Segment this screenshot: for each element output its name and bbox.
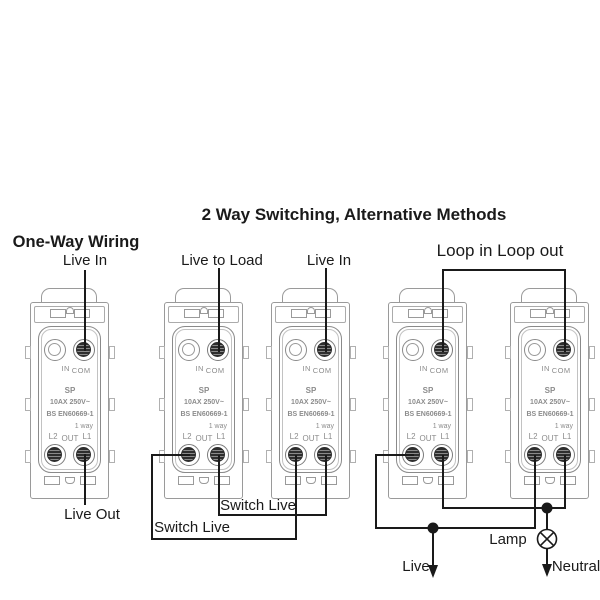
module-clip xyxy=(432,309,448,318)
live-arrow-icon xyxy=(428,565,438,578)
module-side-lug xyxy=(383,450,389,463)
sp-label: SP xyxy=(267,387,355,395)
switch-live-label-lower: Switch Live xyxy=(154,520,230,537)
wire-live-out-m1 xyxy=(84,454,86,505)
module-bottom-clip xyxy=(178,476,194,485)
wire-neutral-drop xyxy=(546,549,548,565)
wire-live-to-load xyxy=(218,268,220,352)
live-feed-label: Live xyxy=(402,559,430,576)
l1-label: L1 xyxy=(562,433,571,441)
in-label: IN xyxy=(302,364,310,373)
one-way-label: 1 way xyxy=(555,423,573,430)
live-in-label-m1: Live In xyxy=(63,253,107,270)
in-label: IN xyxy=(541,364,549,373)
module-bottom-clip xyxy=(65,477,75,484)
wire-loop-top xyxy=(442,269,566,271)
module-side-lug xyxy=(243,346,249,359)
live-to-load-label: Live to Load xyxy=(181,253,263,270)
module-side-lug xyxy=(589,450,595,463)
live-in-label-m3: Live In xyxy=(307,253,351,270)
switch-module: INCOM SP 10AX 250V~ BS EN60669-1 1 way L… xyxy=(502,286,598,502)
out-label: OUT xyxy=(62,435,79,443)
two-way-heading: 2 Way Switching, Alternative Methods xyxy=(202,206,507,225)
l2-label: L2 xyxy=(290,433,299,441)
blank-ring xyxy=(402,339,424,361)
blank-ring-inner xyxy=(406,343,419,356)
wire-switch-live-upper-right xyxy=(325,455,327,516)
com-label: COM xyxy=(313,367,332,375)
module-side-lug xyxy=(159,346,165,359)
wiring-diagram: One-Way Wiring 2 Way Switching, Alternat… xyxy=(0,0,600,600)
loop-heading: Loop in Loop out xyxy=(437,242,564,261)
l2-out-l1-label: L2OUTL1 xyxy=(384,433,472,441)
standard-label: BS EN60669-1 xyxy=(26,411,114,418)
blank-ring-inner xyxy=(289,343,302,356)
module-side-lug xyxy=(243,450,249,463)
l2-label: L2 xyxy=(407,433,416,441)
l2-label: L2 xyxy=(183,433,192,441)
l1-label: L1 xyxy=(216,433,225,441)
module-clip xyxy=(291,309,307,318)
module-bottom-clip xyxy=(199,477,209,484)
in-label: IN xyxy=(195,364,203,373)
l1-label: L1 xyxy=(440,433,449,441)
module-clip xyxy=(184,309,200,318)
wire-switch-live-lower-left xyxy=(151,454,153,540)
out-label: OUT xyxy=(196,435,213,443)
l2-out-l1-label: L2OUTL1 xyxy=(26,433,114,441)
wire-lamp-left xyxy=(442,455,444,509)
module-side-lug xyxy=(505,450,511,463)
module-clip xyxy=(66,307,74,314)
in-label: IN xyxy=(61,364,69,373)
rating-label: 10AX 250V~ xyxy=(26,399,114,406)
neutral-arrow-icon xyxy=(542,564,552,577)
wire-live-in-m1 xyxy=(84,270,86,351)
module-side-lug xyxy=(159,450,165,463)
com-label: COM xyxy=(430,367,449,375)
module-clip xyxy=(200,307,208,314)
in-label: IN xyxy=(419,364,427,373)
switch-module: INCOM SP 10AX 250V~ BS EN60669-1 1 way L… xyxy=(22,286,118,502)
wire-switch-live-upper xyxy=(218,514,327,516)
standard-label: BS EN60669-1 xyxy=(506,411,594,418)
l2-out-l1-label: L2OUTL1 xyxy=(506,433,594,441)
wire-live-in-m3 xyxy=(325,268,327,352)
wire-switch-live-lower-right xyxy=(295,455,297,540)
wire-live-right xyxy=(534,455,536,529)
com-label: COM xyxy=(72,367,91,375)
rating-label: 10AX 250V~ xyxy=(506,399,594,406)
l1-label: L1 xyxy=(82,433,91,441)
module-side-lug xyxy=(350,346,356,359)
l1-label: L1 xyxy=(323,433,332,441)
wire-live-left xyxy=(375,454,377,529)
one-way-label: 1 way xyxy=(316,423,334,430)
module-side-lug xyxy=(350,450,356,463)
wire-loop-left xyxy=(442,269,444,352)
wire-live-stub xyxy=(375,454,414,456)
module-side-lug xyxy=(467,346,473,359)
module-bottom-clip xyxy=(285,476,301,485)
module-bottom-clip xyxy=(545,477,555,484)
wire-lamp-drop xyxy=(546,508,548,529)
sp-label: SP xyxy=(160,387,248,395)
module-clip xyxy=(307,307,315,314)
blank-ring xyxy=(524,339,546,361)
com-label: COM xyxy=(552,367,571,375)
sp-label: SP xyxy=(26,387,114,395)
com-label: COM xyxy=(206,367,225,375)
module-clip xyxy=(74,309,90,318)
module-side-lug xyxy=(266,346,272,359)
one-way-heading: One-Way Wiring xyxy=(13,233,140,251)
module-clip xyxy=(408,309,424,318)
module-clip xyxy=(554,309,570,318)
module-clip xyxy=(208,309,224,318)
switch-module: INCOM SP 10AX 250V~ BS EN60669-1 1 way L… xyxy=(380,286,476,502)
rating-label: 10AX 250V~ xyxy=(160,399,248,406)
one-way-label: 1 way xyxy=(209,423,227,430)
module-clip xyxy=(424,307,432,314)
module-bottom-clip xyxy=(524,476,540,485)
standard-label: BS EN60669-1 xyxy=(267,411,355,418)
switch-module: INCOM SP 10AX 250V~ BS EN60669-1 1 way L… xyxy=(263,286,359,502)
neutral-label: Neutral xyxy=(552,559,600,576)
blank-ring-inner xyxy=(48,343,61,356)
wire-switch-live-upper-left xyxy=(218,455,220,516)
module-bottom-clip xyxy=(44,476,60,485)
blank-ring-inner xyxy=(528,343,541,356)
module-bottom-clip xyxy=(306,477,316,484)
module-bottom-clip xyxy=(438,476,454,485)
wire-live-bottom xyxy=(375,527,536,529)
out-label: OUT xyxy=(303,435,320,443)
wire-lamp-right xyxy=(564,455,566,509)
module-clip xyxy=(546,307,554,314)
in-com-label: INCOM xyxy=(390,365,478,373)
blank-ring xyxy=(178,339,200,361)
rating-label: 10AX 250V~ xyxy=(267,399,355,406)
module-side-lug xyxy=(109,346,115,359)
switch-module: INCOM SP 10AX 250V~ BS EN60669-1 1 way L… xyxy=(156,286,252,502)
sp-label: SP xyxy=(506,387,594,395)
one-way-label: 1 way xyxy=(75,423,93,430)
lamp-icon xyxy=(535,527,559,551)
out-label: OUT xyxy=(542,435,559,443)
l2-terminal xyxy=(44,444,66,466)
blank-ring xyxy=(285,339,307,361)
module-side-lug xyxy=(25,450,31,463)
blank-ring-inner xyxy=(182,343,195,356)
blank-ring xyxy=(44,339,66,361)
module-clip xyxy=(50,309,66,318)
module-bottom-clip xyxy=(560,476,576,485)
in-com-label: INCOM xyxy=(166,365,254,373)
lamp-label: Lamp xyxy=(489,532,527,549)
module-side-lug xyxy=(25,346,31,359)
wire-switch-live-lower-stub xyxy=(151,454,190,456)
wire-loop-right xyxy=(564,269,566,352)
module-side-lug xyxy=(109,450,115,463)
out-label: OUT xyxy=(420,435,437,443)
in-com-label: INCOM xyxy=(273,365,361,373)
l2-label: L2 xyxy=(49,433,58,441)
in-com-label: INCOM xyxy=(32,365,120,373)
module-bottom-clip xyxy=(80,476,96,485)
sp-label: SP xyxy=(384,387,472,395)
module-side-lug xyxy=(266,450,272,463)
wire-live-drop xyxy=(432,528,434,566)
live-out-label: Live Out xyxy=(64,507,120,524)
standard-label: BS EN60669-1 xyxy=(160,411,248,418)
standard-label: BS EN60669-1 xyxy=(384,411,472,418)
module-side-lug xyxy=(383,346,389,359)
module-bottom-clip xyxy=(321,476,337,485)
module-clip xyxy=(530,309,546,318)
module-side-lug xyxy=(505,346,511,359)
one-way-label: 1 way xyxy=(433,423,451,430)
wire-switch-live-lower xyxy=(151,538,297,540)
l2-out-l1-label: L2OUTL1 xyxy=(267,433,355,441)
in-com-label: INCOM xyxy=(512,365,600,373)
rating-label: 10AX 250V~ xyxy=(384,399,472,406)
module-bottom-clip xyxy=(214,476,230,485)
module-bottom-clip xyxy=(423,477,433,484)
module-side-lug xyxy=(589,346,595,359)
screw-icon xyxy=(47,447,62,462)
module-bottom-clip xyxy=(402,476,418,485)
l2-out-l1-label: L2OUTL1 xyxy=(160,433,248,441)
module-side-lug xyxy=(467,450,473,463)
l2-label: L2 xyxy=(529,433,538,441)
module-clip xyxy=(315,309,331,318)
